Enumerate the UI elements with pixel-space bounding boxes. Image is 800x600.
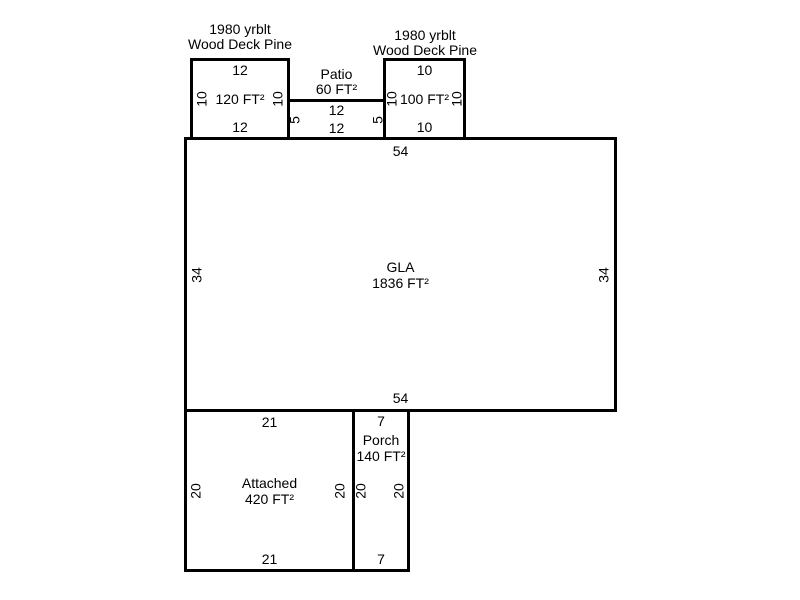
- deck-right-dim-bottom: 10: [386, 120, 463, 135]
- gla-dim-bottom: 54: [187, 391, 614, 406]
- deck-right-dim-right: 10: [450, 91, 465, 107]
- gla-name: GLA: [179, 259, 622, 275]
- attached-outline: 21 20 Attached 420 FT² 20 21: [184, 409, 355, 572]
- deck-left-outline: 12 10 120 FT² 10 12: [190, 58, 290, 140]
- gla-dim-right: 34: [597, 267, 612, 283]
- deck-right-outline: 10 10 100 FT² 10 10: [383, 58, 466, 140]
- porch-dim-right: 20: [392, 483, 407, 499]
- gla-dim-top: 54: [187, 144, 614, 159]
- deck-left-dim-top: 12: [193, 63, 287, 78]
- deck-left-caption-line1: 1980 yrblt: [140, 22, 340, 37]
- porch-name: Porch: [347, 432, 415, 448]
- porch-label: Porch 140 FT²: [347, 432, 415, 464]
- gla-label: GLA 1836 FT²: [179, 259, 622, 291]
- attached-dim-right: 20: [333, 483, 348, 499]
- deck-left-caption-line2: Wood Deck Pine: [140, 37, 340, 52]
- deck-left-caption: 1980 yrblt Wood Deck Pine: [140, 22, 340, 52]
- deck-right-caption: 1980 yrblt Wood Deck Pine: [325, 28, 525, 58]
- porch-dim-top: 7: [355, 414, 407, 429]
- deck-right-caption-line1: 1980 yrblt: [325, 28, 525, 43]
- patio-dim-bottom: 12: [290, 121, 383, 136]
- floor-plan-sketch: 1980 yrblt Wood Deck Pine Patio 60 FT² 1…: [0, 0, 800, 600]
- porch-outline: 7 Porch 140 FT² 20 20 7: [352, 409, 410, 572]
- porch-dim-left: 20: [353, 483, 368, 499]
- deck-left-dim-right: 10: [271, 91, 286, 107]
- attached-dim-top: 21: [187, 415, 352, 430]
- porch-area-label: 140 FT²: [347, 448, 415, 464]
- patio-caption-line2: 60 FT²: [286, 82, 387, 97]
- deck-right-caption-line2: Wood Deck Pine: [325, 43, 525, 58]
- patio-outline: 12 5 5 12: [287, 99, 386, 140]
- deck-left-dim-bottom: 12: [193, 120, 287, 135]
- gla-outline: 54 34 GLA 1836 FT² 34 54: [184, 137, 617, 412]
- porch-dim-bottom: 7: [355, 552, 407, 567]
- attached-dim-bottom: 21: [187, 552, 352, 567]
- patio-caption: Patio 60 FT²: [286, 67, 387, 97]
- patio-caption-line1: Patio: [286, 67, 387, 82]
- gla-area-label: 1836 FT²: [179, 275, 622, 291]
- deck-right-dim-top: 10: [386, 63, 463, 78]
